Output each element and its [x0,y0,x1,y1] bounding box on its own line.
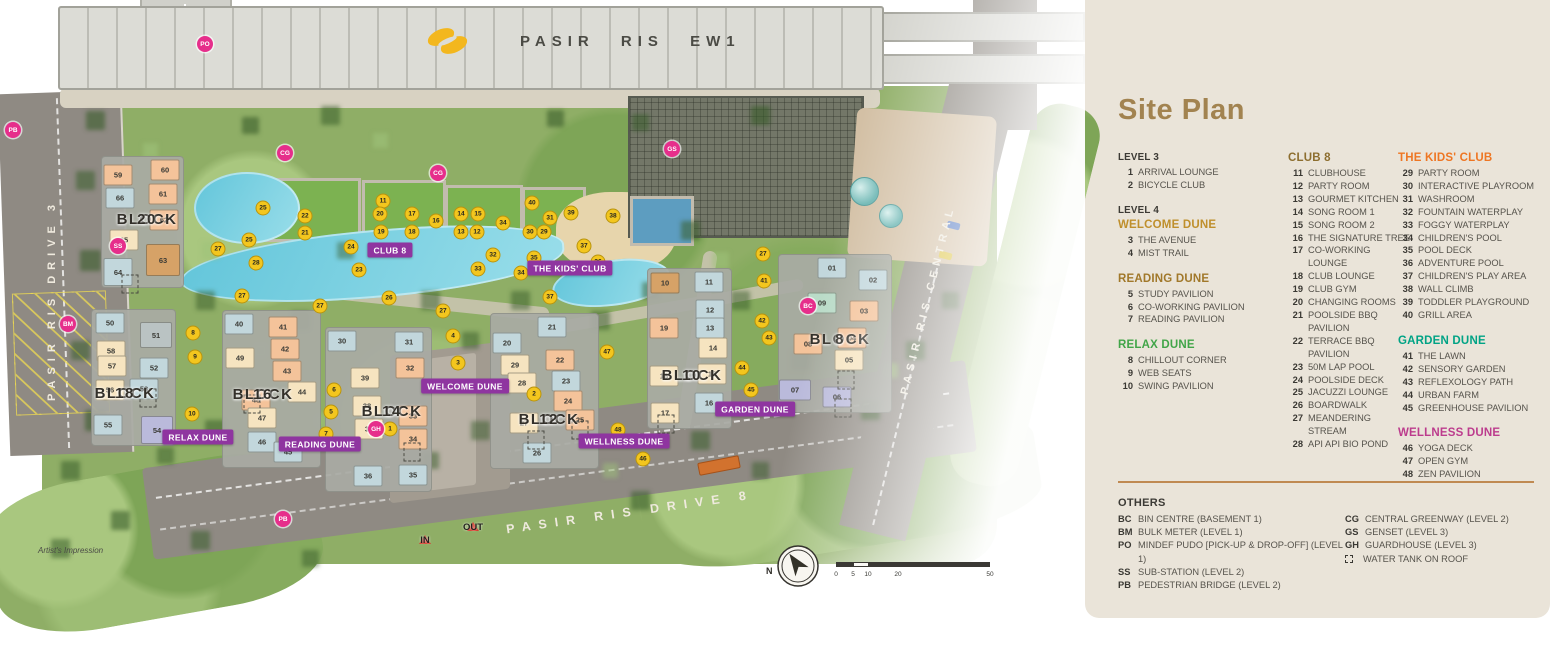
legend-item: 20CHANGING ROOMS [1288,296,1410,309]
unit-50: 50 [96,313,125,334]
amenity-marker-26: 26 [382,291,397,306]
legend-section-heading: THE KIDS' CLUB [1398,152,1546,164]
legend-item: 36ADVENTURE POOL [1398,257,1546,270]
badge-cg: CG [430,165,446,181]
site-plan-page: PASIR RIS EW1 PASIR RIS DRIVE 3 PASIR RI… [0,0,1550,649]
amenity-marker-22: 22 [298,209,313,224]
others-item: WATER TANK ON ROOF [1345,553,1545,566]
legend-item: 12PARTY ROOM [1288,180,1410,193]
legend-item: 37CHILDREN'S PLAY AREA [1398,270,1546,283]
amenity-marker-6: 6 [327,383,342,398]
legend-item: 34CHILDREN'S POOL [1398,232,1546,245]
unit-41: 41 [269,317,298,338]
others-column-1: BCBIN CENTRE (BASEMENT 1)BMBULK METER (L… [1118,513,1343,592]
legend-section: RELAX DUNE8CHILLOUT CORNER9WEB SEATS10SW… [1118,339,1286,393]
amenity-marker-27: 27 [436,304,451,319]
amenity-marker-12: 12 [470,225,485,240]
legend-item: 2BICYCLE CLUB [1118,179,1286,192]
legend-item: 19CLUB GYM [1288,283,1410,296]
unit-32: 32 [396,358,425,379]
legend-item: 31WASHROOM [1398,193,1546,206]
unit-13: 13 [696,318,725,339]
road-name-drive-3: PASIR RIS DRIVE 3 [46,199,58,401]
legend-item: 18CLUB LOUNGE [1288,270,1410,283]
dome-structure [850,177,879,206]
unit-11: 11 [695,272,724,293]
amenity-marker-25: 25 [242,233,257,248]
legend-panel: Site Plan LEVEL 31ARRIVAL LOUNGE2BICYCLE… [1085,0,1550,618]
water-tank-outline [528,431,545,450]
unit-14: 14 [699,338,728,359]
legend-item: 13GOURMET KITCHEN [1288,193,1410,206]
legend-item: 8CHILLOUT CORNER [1118,354,1286,367]
unit-60: 60 [151,160,180,181]
unit-22: 22 [546,350,575,371]
amenity-marker-20: 20 [373,207,388,222]
site-map: PASIR RIS EW1 PASIR RIS DRIVE 3 PASIR RI… [0,0,1085,649]
unit-42: 42 [271,339,300,360]
legend-item: 17CO-WORKING LOUNGE [1288,244,1410,270]
tree-canopy [0,0,1,1]
amenity-marker-14: 14 [454,207,469,222]
zone-label: CLUB 8 [367,243,412,258]
badge-gh: GH [368,421,384,437]
zone-label: GARDEN DUNE [715,402,795,417]
amenity-marker-27: 27 [211,242,226,257]
dome-structure [879,204,903,228]
unit-31: 31 [395,332,424,353]
others-item: GSGENSET (LEVEL 3) [1345,526,1545,539]
others-item: GHGUARDHOUSE (LEVEL 3) [1345,539,1545,552]
legend-section-heading: RELAX DUNE [1118,339,1286,351]
badge-po: PO [197,36,213,52]
unit-10: 10 [651,273,680,294]
unit-19: 19 [650,318,679,339]
compass-n-label: N [766,566,773,576]
unit-03: 03 [850,301,879,322]
legend-section-heading: CLUB 8 [1288,152,1410,164]
amenity-marker-16: 16 [429,214,444,229]
unit-57: 57 [98,356,127,377]
amenity-marker-5: 5 [324,405,339,420]
badge-pb: PB [5,122,21,138]
legend-section-heading: GARDEN DUNE [1398,335,1546,347]
unit-01: 01 [818,258,847,279]
amenity-marker-30: 30 [523,225,538,240]
zone-label: READING DUNE [279,437,361,452]
badge-bc: BC [800,298,816,314]
legend-item: 6CO-WORKING PAVILION [1118,301,1286,314]
amenity-marker-42: 42 [755,314,770,329]
amenity-marker-23: 23 [352,263,367,278]
unit-02: 02 [859,270,888,291]
amenity-marker-37: 37 [543,290,558,305]
legend-section: GARDEN DUNE41THE LAWN42SENSORY GARDEN43R… [1398,335,1546,415]
unit-39: 39 [351,368,380,389]
unit-61: 61 [149,184,178,205]
scale-tick-label: 20 [894,571,901,578]
legend-item: 45GREENHOUSE PAVILION [1398,402,1546,415]
scale-segment [836,562,853,567]
zone-label: WELCOME DUNE [421,379,509,394]
station-name-label: PASIR RIS EW1 [520,33,741,50]
legend-item: 29PARTY ROOM [1398,167,1546,180]
unit-49: 49 [226,348,255,369]
zone-label: THE KIDS' CLUB [527,261,612,276]
unit-40: 40 [225,314,254,335]
legend-item: 2350M LAP POOL [1288,361,1410,374]
unit-36: 36 [354,466,383,487]
scale-tick-label: 10 [864,571,871,578]
amenity-marker-8: 8 [186,326,201,341]
amenity-marker-4: 4 [446,329,461,344]
amenity-marker-21: 21 [298,226,313,241]
legend-item: 32FOUNTAIN WATERPLAY [1398,206,1546,219]
scale-bar: 05102050 [836,558,996,582]
legend-item: 10SWING PAVILION [1118,380,1286,393]
legend-section-heading: LEVEL 4 [1118,205,1286,216]
legend-item: 41THE LAWN [1398,350,1546,363]
amenity-marker-39: 39 [564,206,579,221]
others-item: POMINDEF PUDO [PICK-UP & DROP-OFF] (LEVE… [1118,539,1343,565]
legend-section-heading: WELCOME DUNE [1118,219,1286,231]
legend-item: 14SONG ROOM 1 [1288,206,1410,219]
amenity-marker-47: 47 [600,345,615,360]
legend-column-3: THE KIDS' CLUB29PARTY ROOM30INTERACTIVE … [1398,152,1546,494]
legend-item: 21POOLSIDE BBQ PAVILION [1288,309,1410,335]
legend-item: 35POOL DECK [1398,244,1546,257]
legend-item: 30INTERACTIVE PLAYROOM [1398,180,1546,193]
unit-30: 30 [328,331,357,352]
amenity-marker-10: 10 [185,407,200,422]
scale-segment [868,562,898,567]
amenity-marker-31: 31 [543,211,558,226]
unit-20: 20 [493,333,522,354]
legend-item: 9WEB SEATS [1118,367,1286,380]
legend-section-heading: WELLNESS DUNE [1398,427,1546,439]
water-tank-outline [122,275,139,294]
others-item: CGCENTRAL GREENWAY (LEVEL 2) [1345,513,1545,526]
legend-section: LEVEL 31ARRIVAL LOUNGE2BICYCLE CLUB [1118,152,1286,192]
water-tank-outline [404,443,421,462]
amenity-marker-38: 38 [606,209,621,224]
unit-63: 63 [146,244,180,276]
amenity-marker-27: 27 [756,247,771,262]
legend-item: 25JACUZZI LOUNGE [1288,386,1410,399]
amenity-marker-25: 25 [256,201,271,216]
amenity-marker-27: 27 [313,299,328,314]
unit-46: 46 [248,432,277,453]
unit-35: 35 [399,465,428,486]
amenity-marker-43: 43 [762,331,777,346]
amenity-marker-34: 34 [514,266,529,281]
others-item: PBPEDESTRIAN BRIDGE (LEVEL 2) [1118,579,1343,592]
unit-24: 24 [554,391,583,412]
scale-tick-label: 0 [834,571,838,578]
unit-55: 55 [94,415,123,436]
water-tank-outline [658,415,675,434]
zone-label: RELAX DUNE [162,430,233,445]
legend-item: 40GRILL AREA [1398,309,1546,322]
legend-item: 44URBAN FARM [1398,389,1546,402]
unit-66: 66 [106,188,135,209]
water-tank-icon [1345,555,1353,563]
legend-item: 47OPEN GYM [1398,455,1546,468]
amenity-marker-33: 33 [471,262,486,277]
legend-item: 26BOARDWALK [1288,399,1410,412]
legend-item: 42SENSORY GARDEN [1398,363,1546,376]
others-column-2: CGCENTRAL GREENWAY (LEVEL 2)GSGENSET (LE… [1345,513,1545,566]
amenity-marker-32: 32 [486,248,501,263]
amenity-marker-13: 13 [454,225,469,240]
legend-section-heading: READING DUNE [1118,273,1286,285]
legend-item: 11CLUBHOUSE [1288,167,1410,180]
badge-cg: CG [277,145,293,161]
amenity-marker-41: 41 [757,274,772,289]
amenity-marker-34: 34 [496,216,511,231]
legend-section: WELLNESS DUNE46YOGA DECK47OPEN GYM48ZEN … [1398,427,1546,481]
unit-59: 59 [104,165,133,186]
amenity-marker-40: 40 [525,196,540,211]
legend-section: CLUB 811CLUBHOUSE12PARTY ROOM13GOURMET K… [1288,152,1410,451]
amenity-marker-3: 3 [451,356,466,371]
legend-item: 39TODDLER PLAYGROUND [1398,296,1546,309]
artists-impression-note: Artist's Impression [38,546,103,555]
badge-pb: PB [275,511,291,527]
amenity-marker-24: 24 [344,240,359,255]
legend-section: LEVEL 4 [1118,205,1286,216]
amenity-marker-45: 45 [744,383,759,398]
legend-item: 15SONG ROOM 2 [1288,219,1410,232]
legend-section: WELCOME DUNE3THE AVENUE4MIST TRAIL [1118,219,1286,260]
legend-item: 33FOGGY WATERPLAY [1398,219,1546,232]
rail-viaduct [876,54,1085,84]
unit-52: 52 [140,358,169,379]
legend-item: 24POOLSIDE DECK [1288,374,1410,387]
badge-bm: BM [60,316,76,332]
legend-section: THE KIDS' CLUB29PARTY ROOM30INTERACTIVE … [1398,152,1546,322]
legend-item: 43REFLEXOLOGY PATH [1398,376,1546,389]
legend-item: 7READING PAVILION [1118,313,1286,326]
legend-item: 22TERRACE BBQ PAVILION [1288,335,1410,361]
amenity-marker-37: 37 [577,239,592,254]
rail-viaduct [876,12,1085,42]
water-tank-outline [838,371,855,390]
amenity-marker-29: 29 [537,225,552,240]
unit-51: 51 [140,322,172,348]
legend-item: 5STUDY PAVILION [1118,288,1286,301]
amenity-marker-46: 46 [636,452,651,467]
page-title: Site Plan [1118,94,1245,127]
legend-item: 28API API BIO POND [1288,438,1410,451]
legend-item: 3THE AVENUE [1118,234,1286,247]
amenity-marker-17: 17 [405,207,420,222]
unit-05: 05 [835,350,864,371]
zone-label: WELLNESS DUNE [579,434,670,449]
amenity-marker-44: 44 [735,361,750,376]
legend-item: 16THE SIGNATURE TREE [1288,232,1410,245]
unit-23: 23 [552,371,581,392]
water-tank-outline [835,399,852,418]
amenity-marker-1: 1 [383,422,398,437]
amenity-marker-19: 19 [374,225,389,240]
others-item: BCBIN CENTRE (BASEMENT 1) [1118,513,1343,526]
amenity-marker-2: 2 [527,387,542,402]
legend-column-2: CLUB 811CLUBHOUSE12PARTY ROOM13GOURMET K… [1288,152,1410,464]
amenity-marker-27: 27 [235,289,250,304]
legend-item: 48ZEN PAVILION [1398,468,1546,481]
mrt-station-building [58,6,884,90]
others-item: SSSUB-STATION (LEVEL 2) [1118,566,1343,579]
badge-ss: SS [110,238,126,254]
legend-item: 38WALL CLIMB [1398,283,1546,296]
scale-tick-label: 50 [986,571,993,578]
others-heading: OTHERS [1118,497,1166,509]
scale-segment [898,562,990,567]
legend-section: READING DUNE5STUDY PAVILION6CO-WORKING P… [1118,273,1286,327]
legend-item: 46YOGA DECK [1398,442,1546,455]
badge-gs: GS [664,141,680,157]
amenity-marker-15: 15 [471,207,486,222]
legend-item: 4MIST TRAIL [1118,247,1286,260]
amenity-marker-18: 18 [405,225,420,240]
amenity-marker-28: 28 [249,256,264,271]
legend-column-1: LEVEL 31ARRIVAL LOUNGE2BICYCLE CLUBLEVEL… [1118,152,1286,406]
sports-court [630,196,694,246]
others-item: BMBULK METER (LEVEL 1) [1118,526,1343,539]
legend-section-heading: LEVEL 3 [1118,152,1286,163]
unit-43: 43 [273,361,302,382]
amenity-marker-9: 9 [188,350,203,365]
scale-tick-label: 5 [851,571,855,578]
legend-item: 27MEANDERING STREAM [1288,412,1410,438]
unit-21: 21 [538,317,567,338]
section-divider [1118,481,1534,483]
unit-07: 07 [779,380,811,401]
legend-item: 1ARRIVAL LOUNGE [1118,166,1286,179]
